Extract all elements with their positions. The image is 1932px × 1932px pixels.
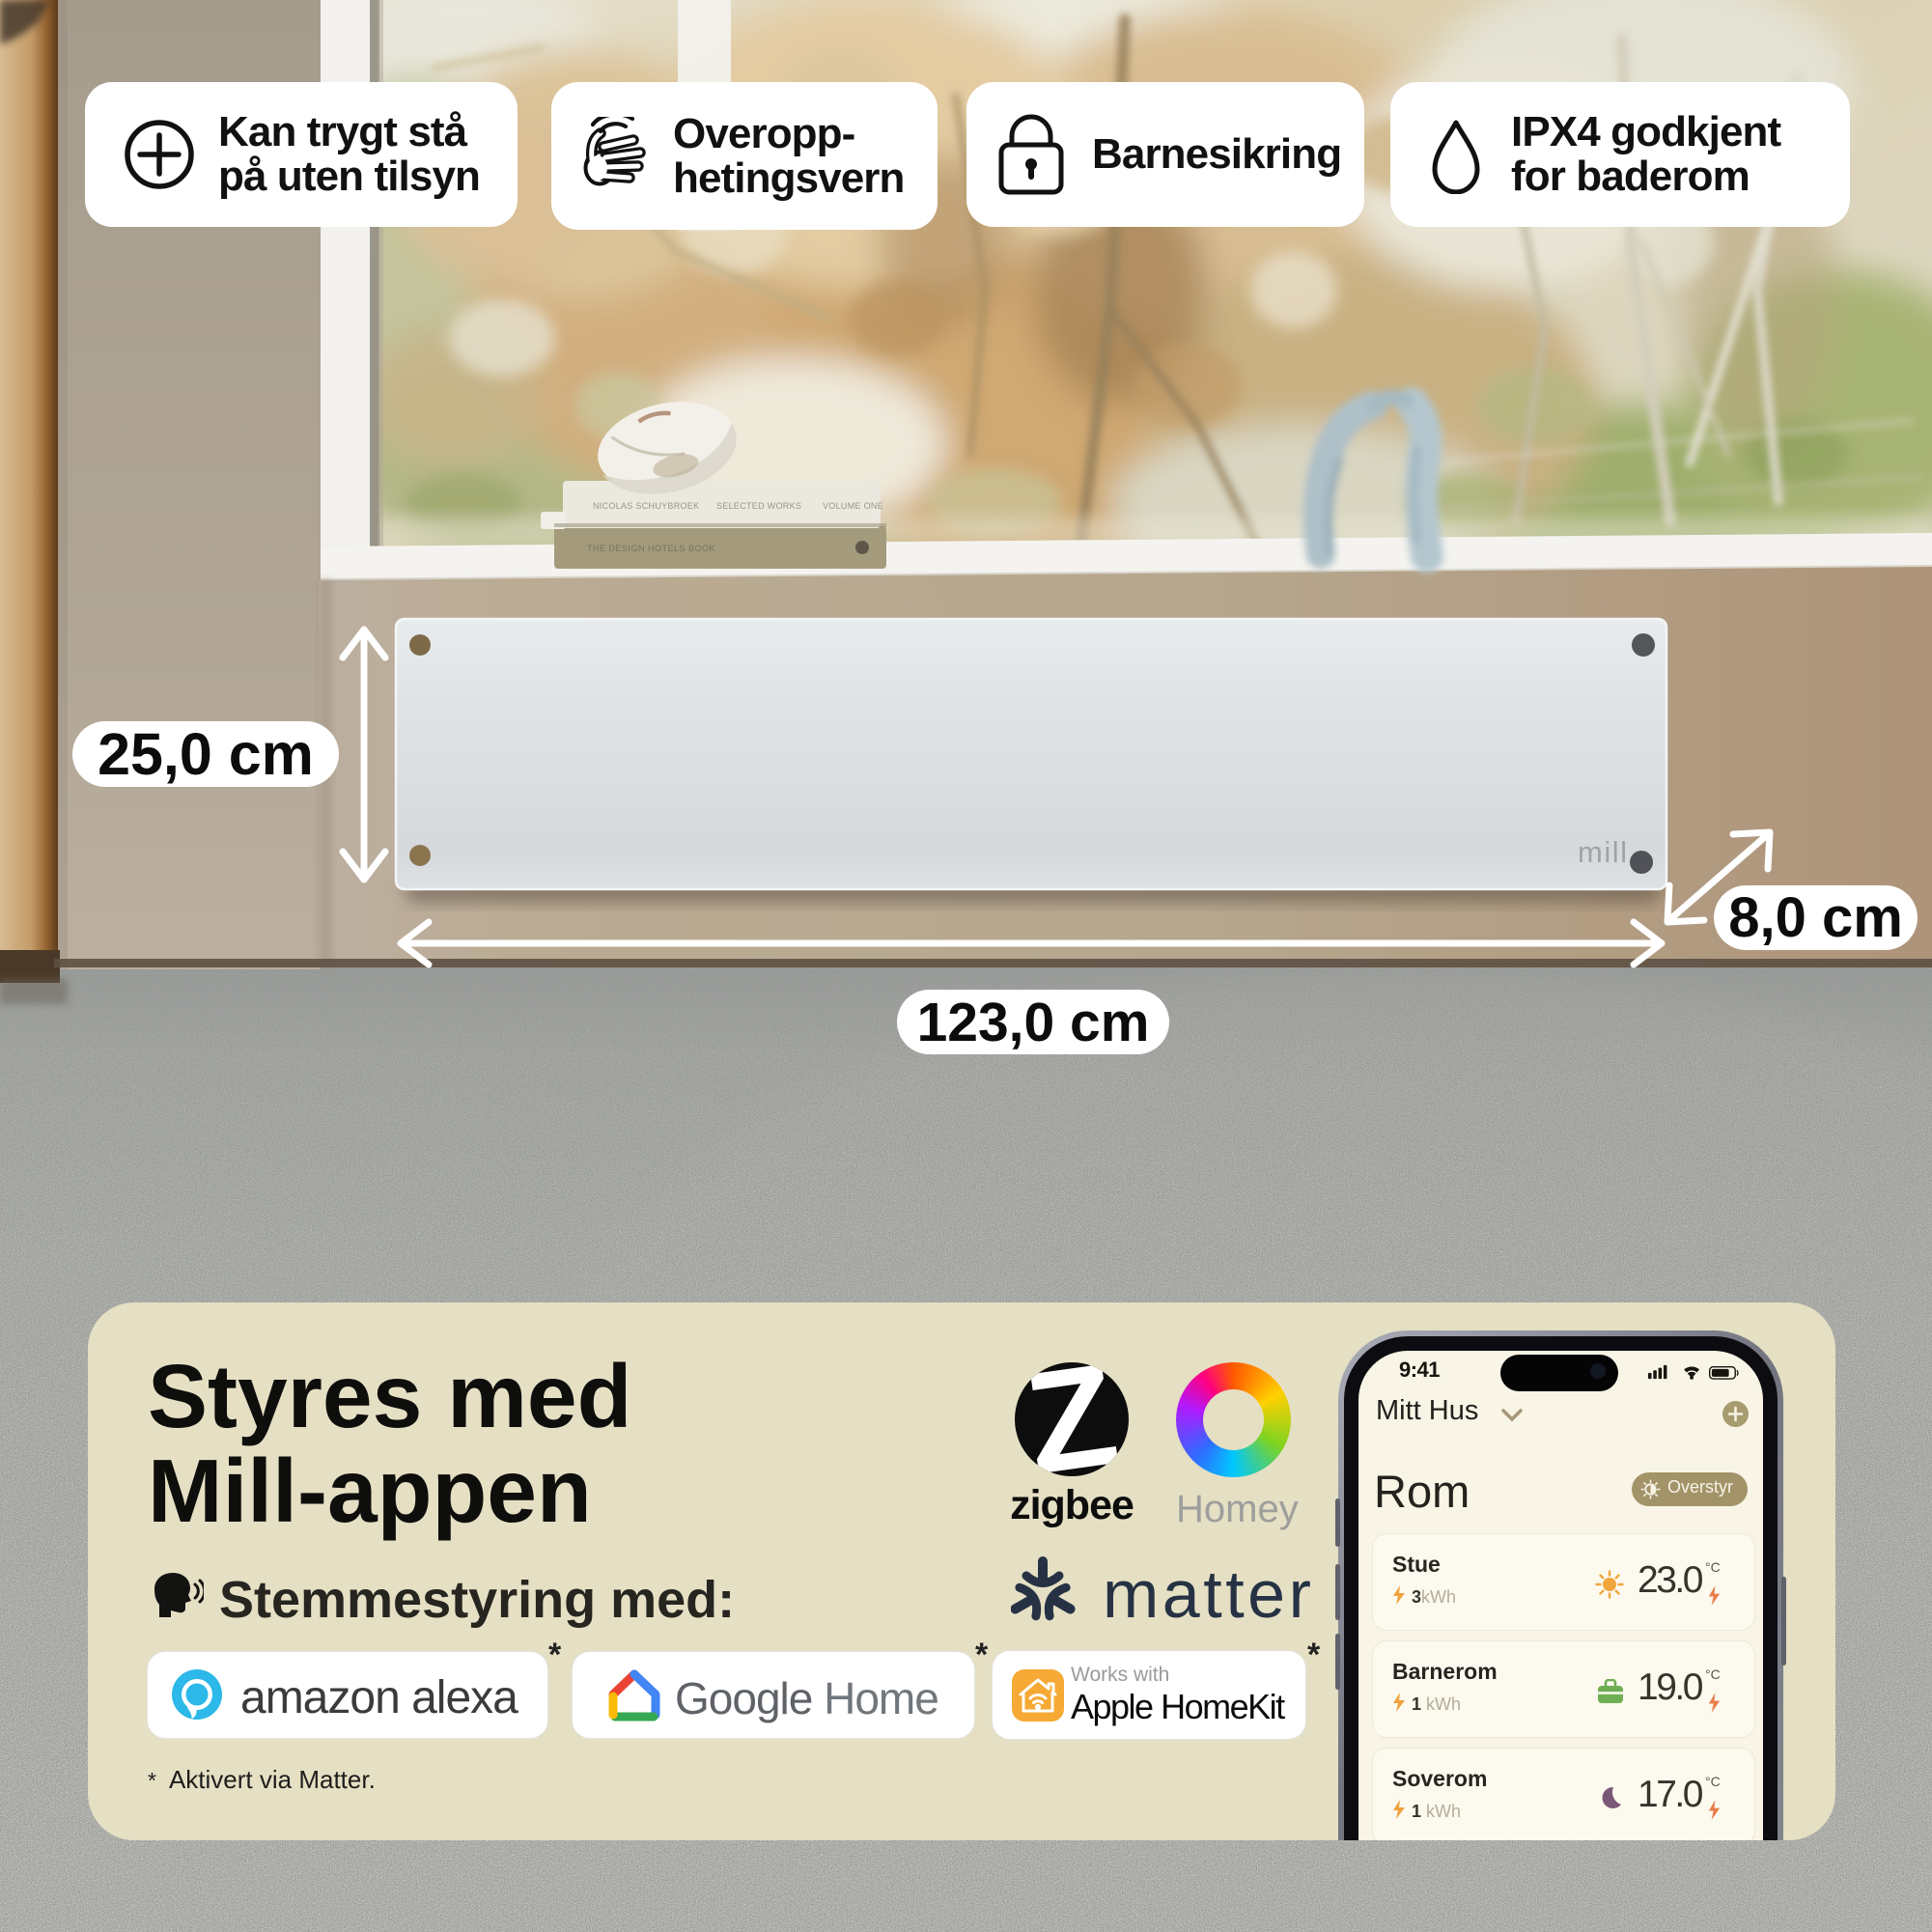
svg-text:SELECTED WORKS: SELECTED WORKS: [716, 501, 801, 511]
svg-text:VOLUME ONE: VOLUME ONE: [823, 501, 883, 511]
svg-text:THE DESIGN HOTELS BOOK: THE DESIGN HOTELS BOOK: [587, 544, 715, 553]
svg-text:NICOLAS SCHUYBROEK: NICOLAS SCHUYBROEK: [593, 501, 699, 511]
svg-text:zigbee: zigbee: [1010, 1482, 1134, 1528]
svg-text:mill: mill: [1578, 835, 1629, 869]
svg-text:matter: matter: [1103, 1556, 1314, 1631]
